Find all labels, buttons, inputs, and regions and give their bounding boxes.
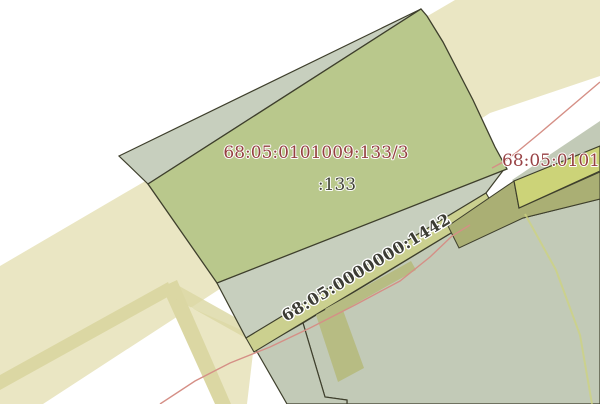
cadastral-map-viewport: 68:05:0101009:133/3 :133 68:05:010100 68…	[0, 0, 600, 404]
cadastral-map: 68:05:0101009:133/3 :133 68:05:010100 68…	[0, 0, 600, 404]
label-parcel-right[interactable]: 68:05:010100	[502, 151, 600, 171]
label-parcel-main-short[interactable]: :133	[318, 175, 356, 195]
label-parcel-main[interactable]: 68:05:0101009:133/3	[223, 143, 408, 163]
